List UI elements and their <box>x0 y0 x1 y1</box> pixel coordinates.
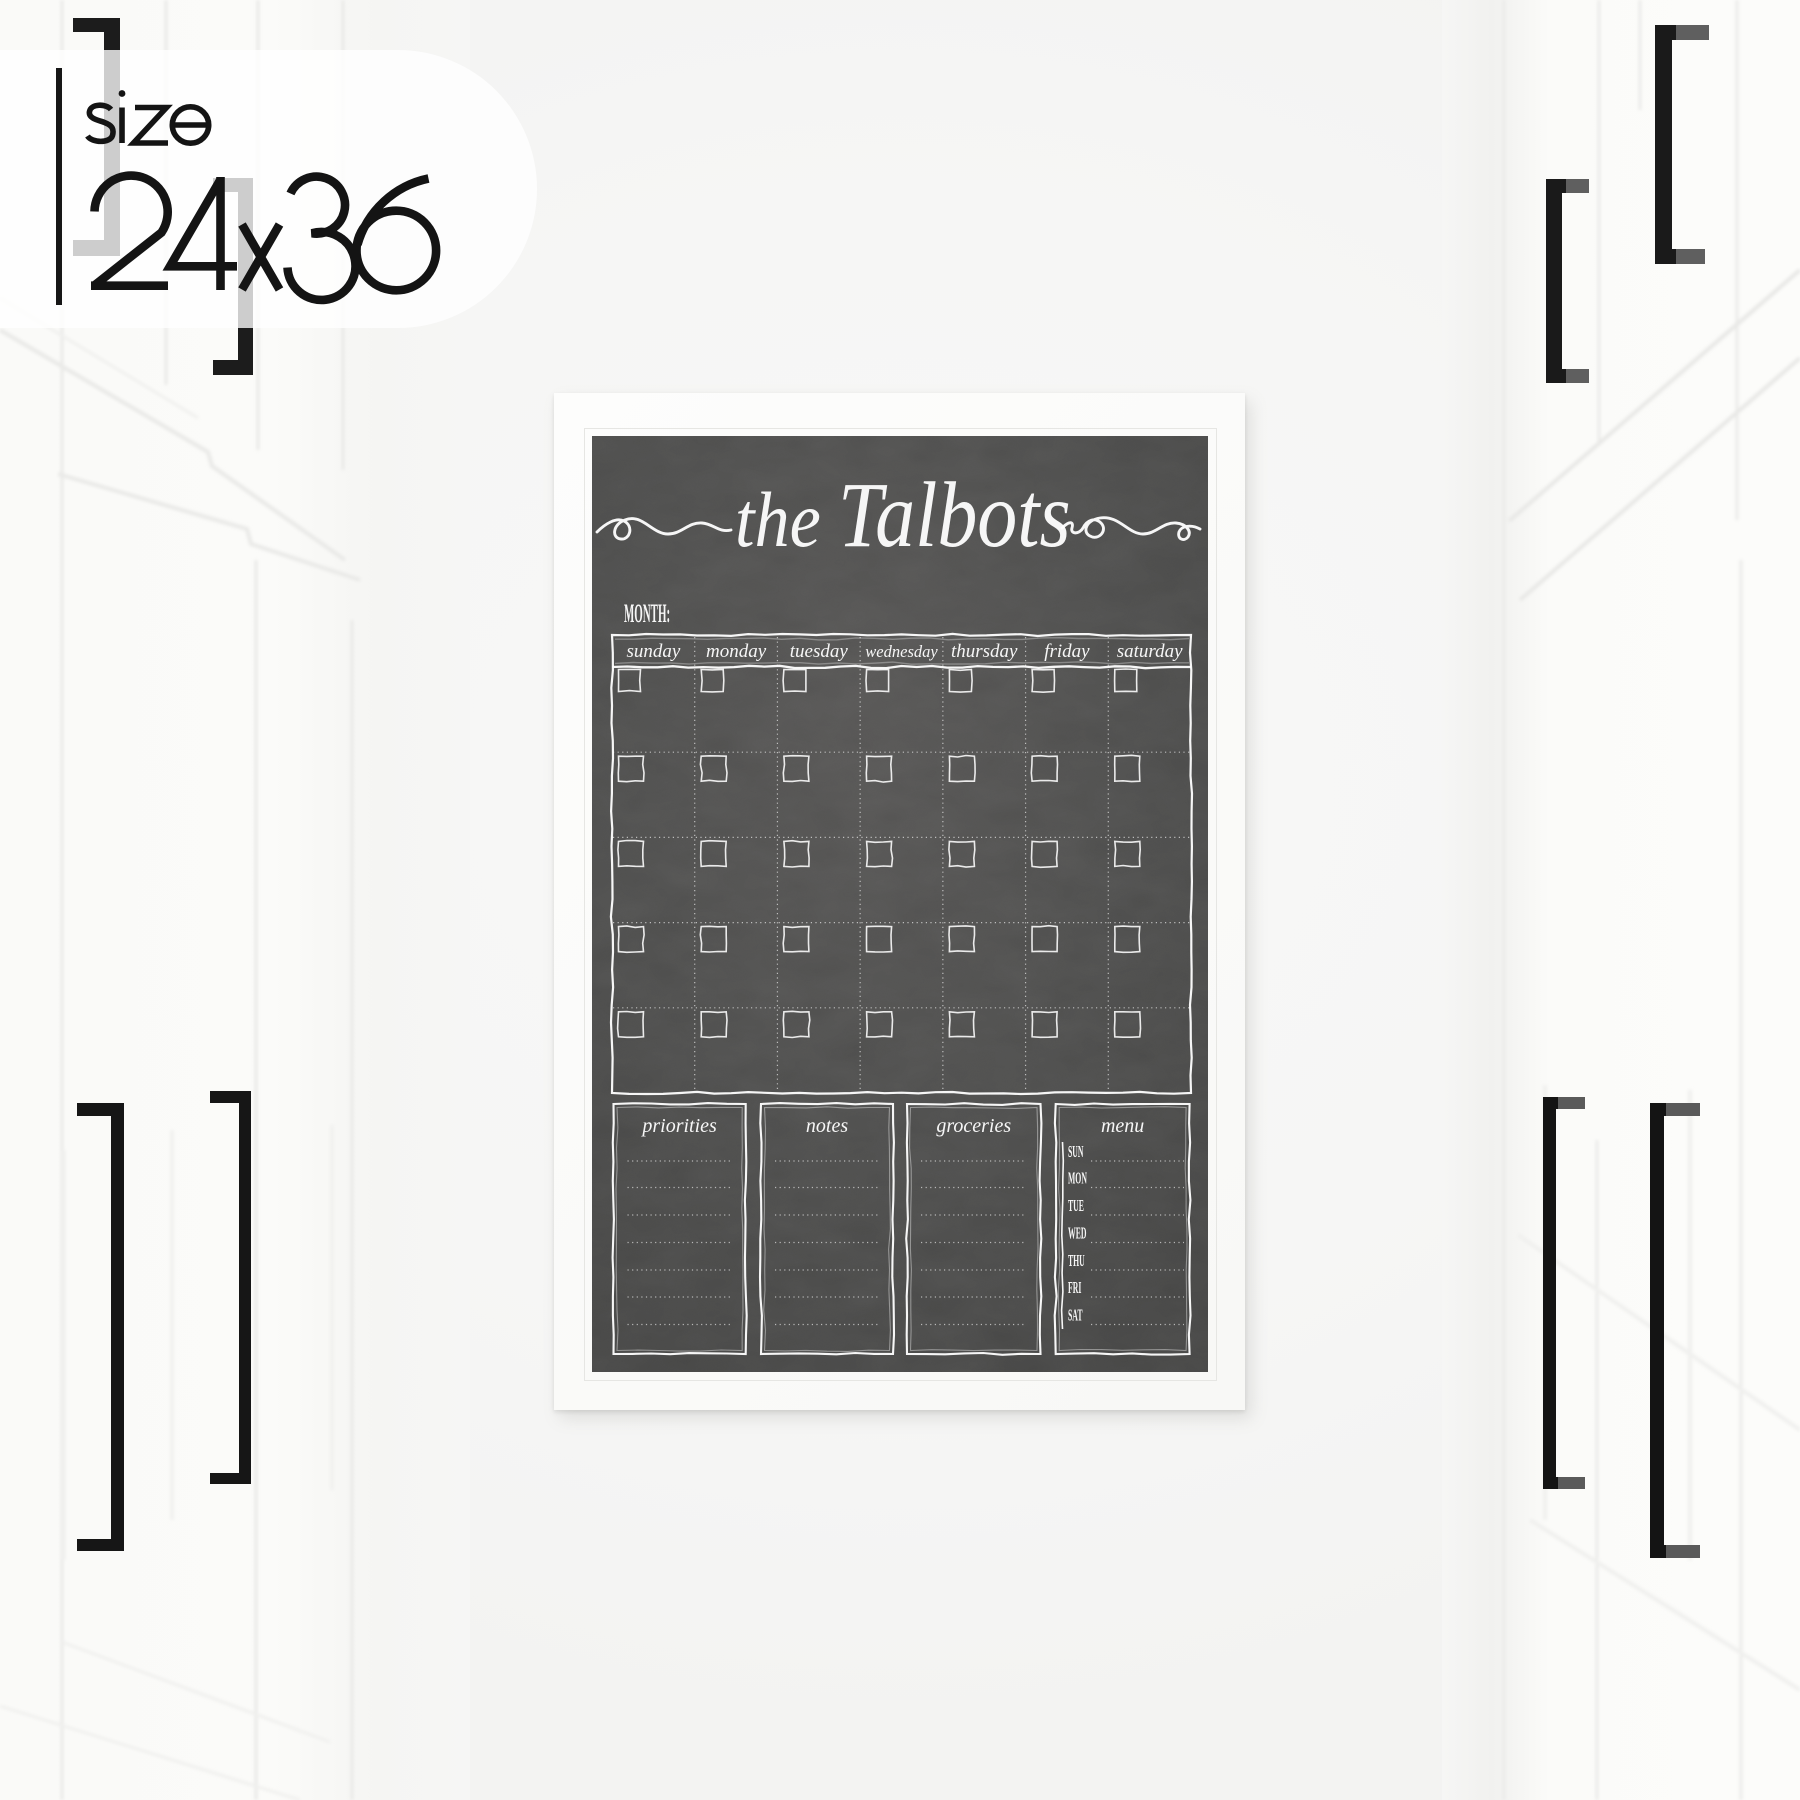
svg-text:SUN: SUN <box>1068 1143 1084 1161</box>
svg-text:saturday: saturday <box>1117 641 1183 662</box>
svg-text:MONTH:: MONTH: <box>624 600 670 629</box>
svg-text:WED: WED <box>1068 1224 1087 1242</box>
svg-text:notes: notes <box>806 1115 848 1137</box>
svg-text:MON: MON <box>1068 1169 1087 1187</box>
svg-text:wednesday: wednesday <box>865 642 938 661</box>
svg-text:TUE: TUE <box>1068 1197 1084 1215</box>
svg-text:SAT: SAT <box>1068 1306 1083 1324</box>
svg-text:thursday: thursday <box>951 641 1018 662</box>
svg-text:tuesday: tuesday <box>790 641 849 662</box>
svg-text:priorities: priorities <box>640 1115 717 1137</box>
svg-text:Talbots: Talbots <box>838 463 1071 566</box>
svg-text:groceries: groceries <box>936 1115 1011 1137</box>
svg-text:the: the <box>735 478 821 564</box>
svg-text:sunday: sunday <box>626 641 680 662</box>
svg-text:friday: friday <box>1044 641 1090 662</box>
svg-text:THU: THU <box>1068 1252 1085 1270</box>
svg-text:monday: monday <box>706 641 767 662</box>
svg-text:FRI: FRI <box>1068 1279 1081 1297</box>
svg-text:menu: menu <box>1101 1115 1144 1137</box>
